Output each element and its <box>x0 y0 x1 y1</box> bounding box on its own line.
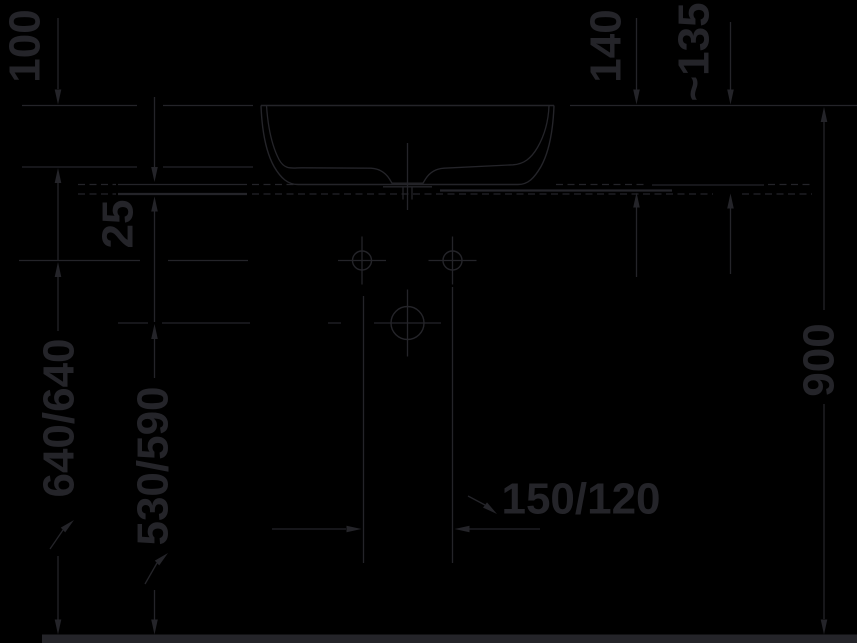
dimension-150-120: 150/120 <box>272 475 661 533</box>
floor-bar <box>42 635 857 643</box>
tap-hole-left <box>338 237 386 285</box>
drain-hole <box>374 290 441 357</box>
dimension-100: 100 <box>1 9 62 183</box>
dimension-25: 25 <box>94 97 158 248</box>
dim-label-100: 100 <box>1 9 50 82</box>
dim-label-640-640: 640/640 <box>35 338 84 497</box>
dim-label-135: ~135 <box>670 2 719 101</box>
dim-label-530-590: 530/590 <box>129 386 178 545</box>
drawing-canvas: 100 25 640/640 530/590 140 <box>0 0 857 643</box>
dim-label-140: 140 <box>582 9 631 82</box>
dimension-140: 140 <box>582 9 640 277</box>
dim-label-900: 900 <box>795 323 844 396</box>
dimension-530-590: 530/590 <box>129 212 178 635</box>
dimension-135: ~135 <box>670 2 734 274</box>
dim-label-150-120: 150/120 <box>501 475 660 524</box>
dimension-900: 900 <box>795 107 844 635</box>
tap-hole-right <box>429 237 477 285</box>
dimension-640-640: 640/640 <box>35 183 84 635</box>
washbasin-technical-drawing: 100 25 640/640 530/590 140 <box>0 0 857 643</box>
dim-label-25: 25 <box>94 200 143 249</box>
